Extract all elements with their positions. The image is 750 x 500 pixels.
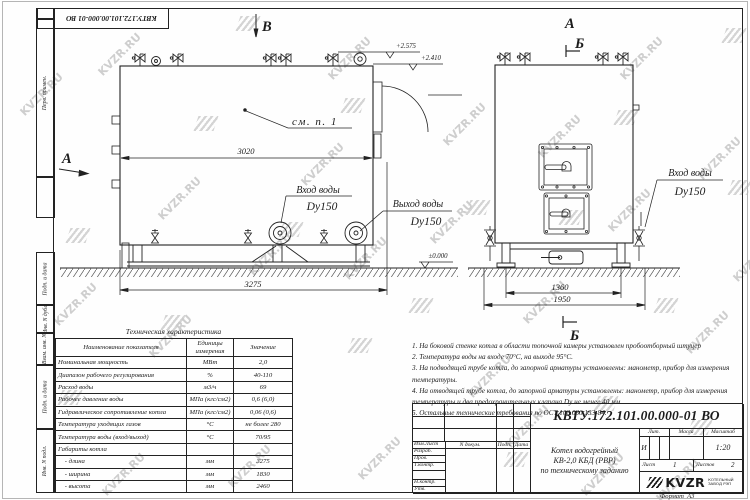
tech-col-name: Наименование показателя [56,339,187,357]
elevation-2410: +2.410 [421,55,441,62]
table-row: Расход водым3/ч69 [56,381,293,393]
table-row: Гидравлическое сопротивление котлаМПа (к… [56,406,293,418]
section-label-b-top: Б [574,36,584,52]
dim-1950: 1950 [554,294,572,304]
table-cell: 70/95 [234,431,293,443]
margin-label: Перв. примен. [43,76,49,110]
tb-cell [444,428,497,442]
sheet-value: 1 [673,461,677,469]
view-label-a-right: А [564,16,575,32]
inlet-dn: Dy150 [306,201,338,213]
view-label-b: В [261,19,272,35]
title-block: Изм.Лист N докум. Подп. Дата Разраб. Про… [412,403,743,493]
corner-stamp: КВТУ.172.101.00.000-01 ВО [53,8,169,29]
corner-stamp-doc-number: КВТУ.172.101.00.000-01 ВО [66,14,157,23]
table-cell: - длина [56,456,187,468]
table-row: Номинальная мощностьМВт2,0 [56,357,293,369]
table-row: - длинамм3275 [56,456,293,468]
table-cell: 40-110 [234,369,293,381]
table-cell: Номинальная мощность [56,357,187,369]
table-cell: °С [187,431,234,443]
sheets-value: 2 [731,461,735,469]
table-cell: не более 280 [234,418,293,430]
table-cell: 0,6 (6,0) [234,394,293,406]
table-cell: м3/ч [187,381,234,393]
tech-table-title: Техническая характеристика [55,327,292,336]
tb-cell [496,448,514,494]
table-cell: 2,0 [234,357,293,369]
note-item: 2. Температура воды на входе 70°С, на вы… [412,352,744,363]
tb-cell [413,428,445,442]
tech-col-value: Значение [234,339,293,357]
table-cell: - высота [56,480,187,492]
dim-1360: 1360 [552,282,570,292]
inlet-right-label: Вход воды [668,168,712,179]
kvzr-logo-text: KVZR [665,475,705,490]
tb-doc-number-box: КВТУ.172.101.00.000-01 ВО [530,404,744,429]
note-item: 1. На боковой стенке котла в области топ… [412,341,744,352]
table-cell: мм [187,468,234,480]
table-cell: Рабочее давление воды [56,394,187,406]
elevation-2575: +2.575 [396,43,416,50]
table-row: Рабочее давление водыМПа (кгс/см2)0,6 (6… [56,394,293,406]
outlet-dn: Dy150 [410,216,442,228]
tb-mass-value [669,436,704,460]
inlet-flange [269,222,291,244]
table-cell: 1830 [234,468,293,480]
margin-cell-inv-dubl: Инв. N дубл. [36,304,55,334]
outlet-label: Выход воды [393,199,444,210]
sheets-label: Листов [696,462,714,468]
table-row: Диапазон рабочего регулирования%40-110 [56,369,293,381]
note-item: 3. На подводящей трубе котла, до запорно… [412,363,744,385]
callout-see-note-1: см. п. 1 [292,116,338,128]
elevation-zero: ±0.000 [428,253,448,260]
table-cell: 0,06 (0,6) [234,406,293,418]
tech-characteristics-table: Наименование показателя Единицы измерени… [55,338,293,493]
tb-logo-cell: KVZR КОТЕЛЬНЫЙ ЗАВОД РЭП [639,471,744,494]
kvzr-logo-icon [647,477,665,488]
margin-cell-podp-data-1: Подп. и дата [36,252,55,306]
product-line-2: КВ-2,0 КБД (РВР) [540,456,628,466]
left-view [60,53,462,277]
margin-cell-podp-data-2: Подп. и дата [36,364,55,430]
view-arrows [59,14,258,176]
drawing-sheet: KVZR.RUKVZR.RUKVZR.RUKVZR.RUKVZR.RUKVZR.… [0,0,750,500]
table-cell: °С [187,418,234,430]
table-cell: Гидравлическое сопротивление котла [56,406,187,418]
table-cell: Габариты котла [56,443,187,455]
tb-cell [513,428,531,442]
inlet-right-dn: Dy150 [674,186,706,198]
outlet-flange [345,222,367,244]
table-row: Температура уходящих газов°Сне более 280 [56,418,293,430]
margin-label: Подп. и дата [43,380,49,413]
table-cell: 69 [234,381,293,393]
sheet-label: Лист [642,462,655,468]
tb-cell [496,428,514,442]
tech-col-units: Единицы измерения [187,339,234,357]
table-row: Температура воды (вход/выход)°С70/95 [56,431,293,443]
table-cell: МПа (кгс/см2) [187,406,234,418]
doc-number: КВТУ.172.101.00.000-01 ВО [553,408,719,424]
view-label-a-left: А [61,151,72,167]
table-cell [234,443,293,455]
margin-cell-perv-primen: Перв. примен. [36,8,55,178]
table-cell: 3275 [234,456,293,468]
margin-label: Инв. N дубл. [43,304,49,334]
table-cell: МПа (кгс/см2) [187,394,234,406]
tb-product-name: Котел водогрейный КВ-2,0 КБД (РВР) по те… [530,428,640,494]
tb-cell [513,448,531,494]
margin-cell-vzam-inv: Взам. инв. N [36,332,55,366]
tb-cell [444,448,497,494]
table-cell: % [187,369,234,381]
table-cell: мм [187,480,234,492]
tb-scale-value: 1:20 [703,436,744,460]
table-row: Габариты котла [56,443,293,455]
product-line-3: по техническому заданию [540,466,628,476]
table-cell: 2460 [234,480,293,492]
format-label: Формат А3 [660,493,694,500]
inlet-label: Вход воды [296,185,340,196]
table-cell: МВт [187,357,234,369]
table-cell: мм [187,456,234,468]
margin-label: Инв. N подл. [43,445,49,475]
table-cell: Температура воды (вход/выход) [56,431,187,443]
dim-3020: 3020 [237,146,256,156]
margin-cell-inv-podl: Инв. N подл. [36,428,55,493]
product-line-1: Котел водогрейный [540,446,628,456]
table-cell: Диапазон рабочего регулирования [56,369,187,381]
kvzr-logo-subtext: КОТЕЛЬНЫЙ ЗАВОД РЭП [708,478,734,487]
table-cell: - ширина [56,468,187,480]
right-view [468,53,680,277]
margin-label: Подп. и дата [43,262,49,295]
table-row: - ширинамм1830 [56,468,293,480]
margin-label: Взам. инв. N [43,334,49,364]
elevation-marks [338,52,453,268]
table-cell: Расход воды [56,381,187,393]
table-row: - высотамм2460 [56,480,293,492]
margin-cell-sprav [36,176,55,218]
dim-3275: 3275 [244,279,262,289]
table-cell [187,443,234,455]
tb-row-utv: Утв. [413,486,446,494]
table-cell: Температура уходящих газов [56,418,187,430]
